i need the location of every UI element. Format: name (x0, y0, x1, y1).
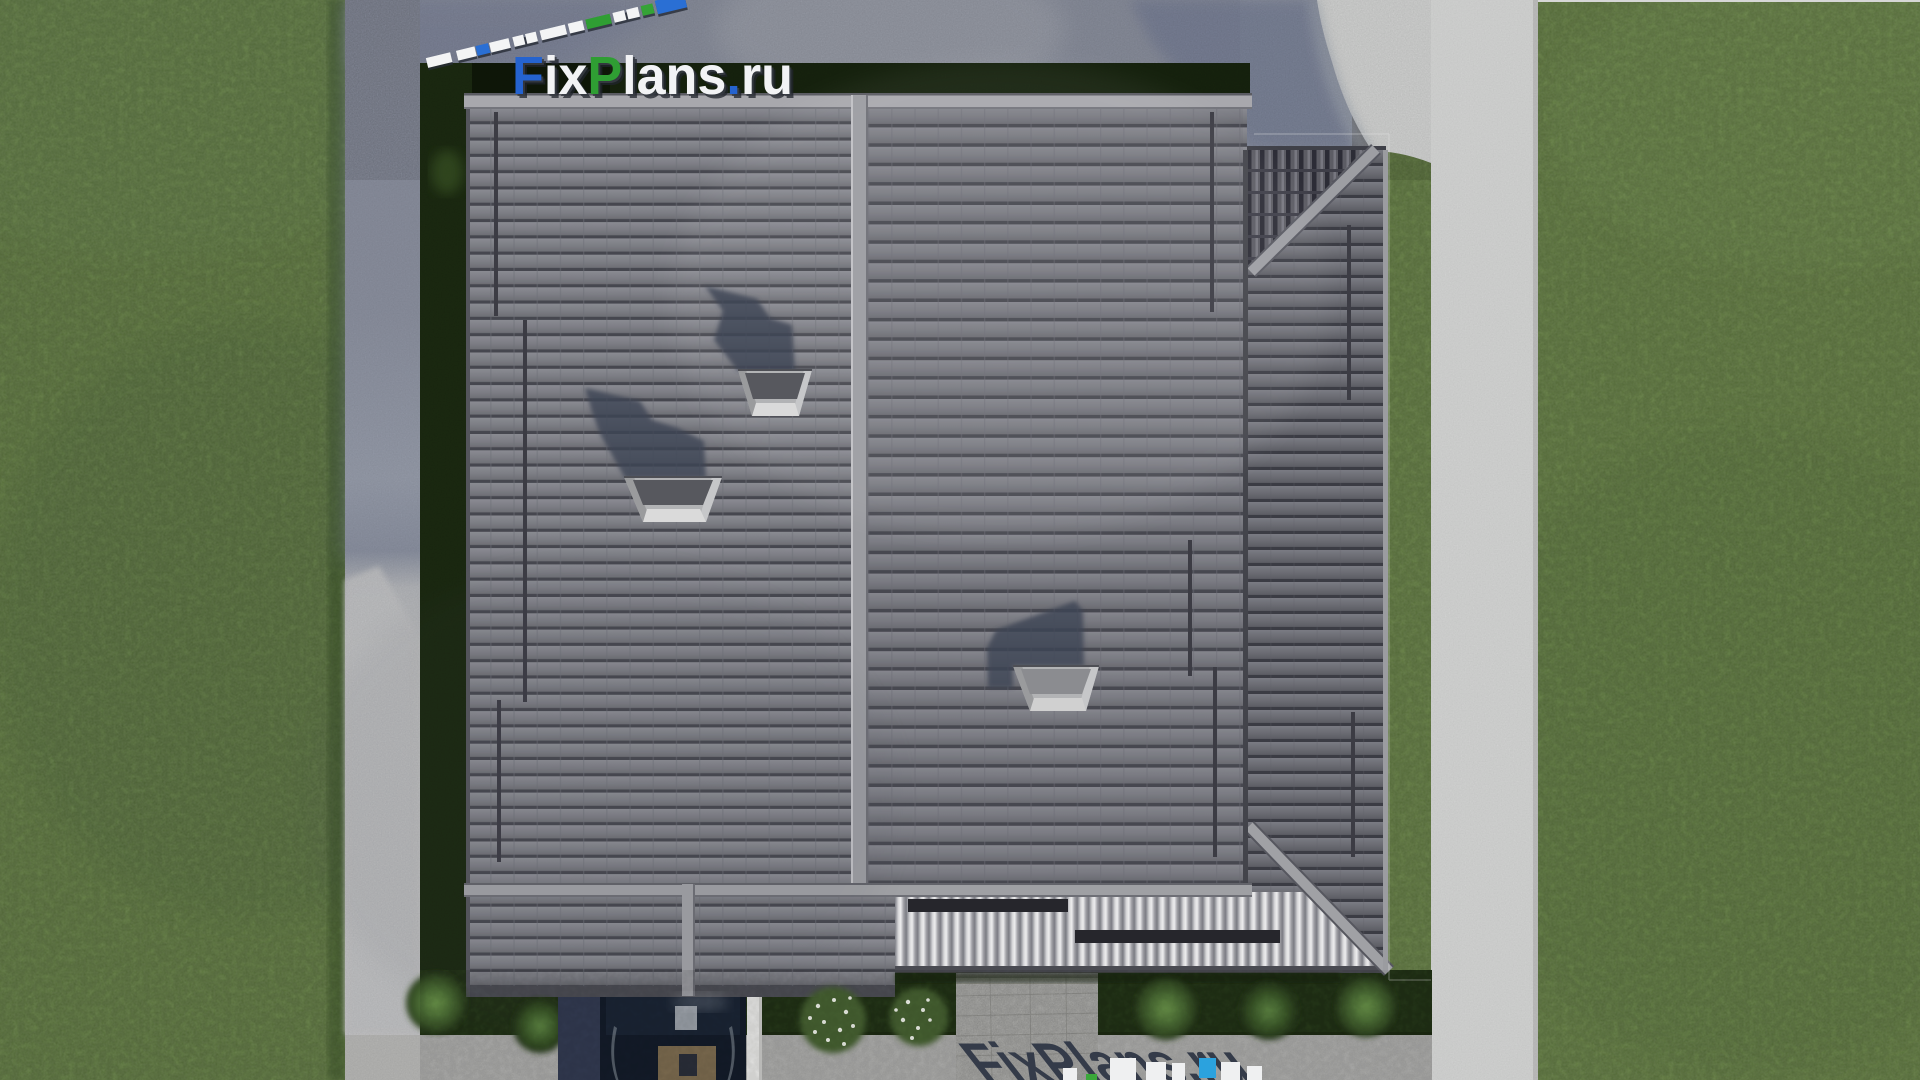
svg-text:FixPlans.ru: FixPlans.ru (945, 1031, 1266, 1080)
svg-text:FixPlans.ru: FixPlans.ru (512, 46, 793, 106)
